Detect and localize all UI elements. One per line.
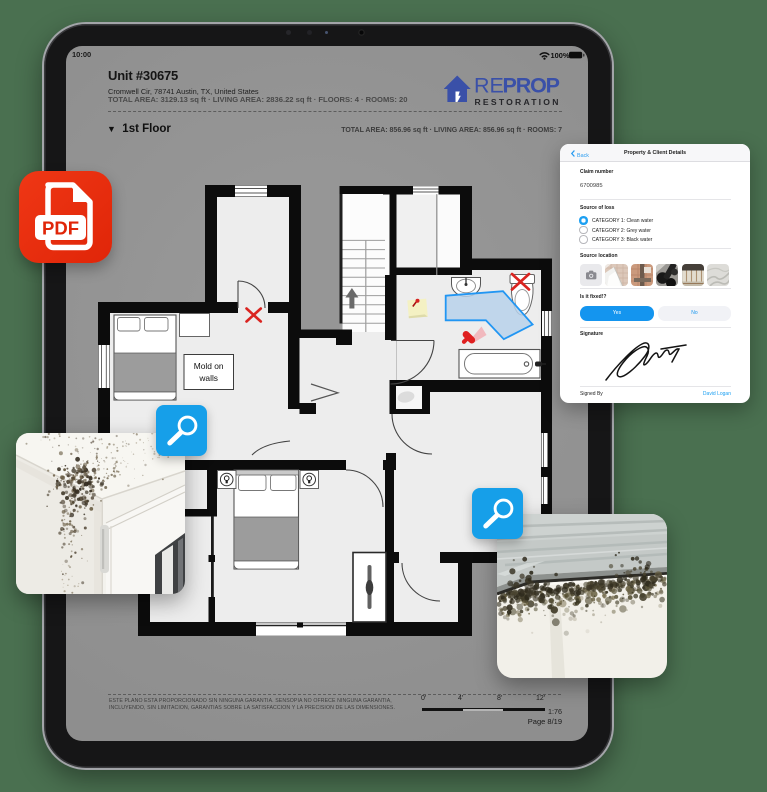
svg-text:walls: walls [198, 373, 218, 383]
svg-text:Mold on: Mold on [194, 361, 224, 371]
svg-text:PDF: PDF [42, 218, 79, 239]
